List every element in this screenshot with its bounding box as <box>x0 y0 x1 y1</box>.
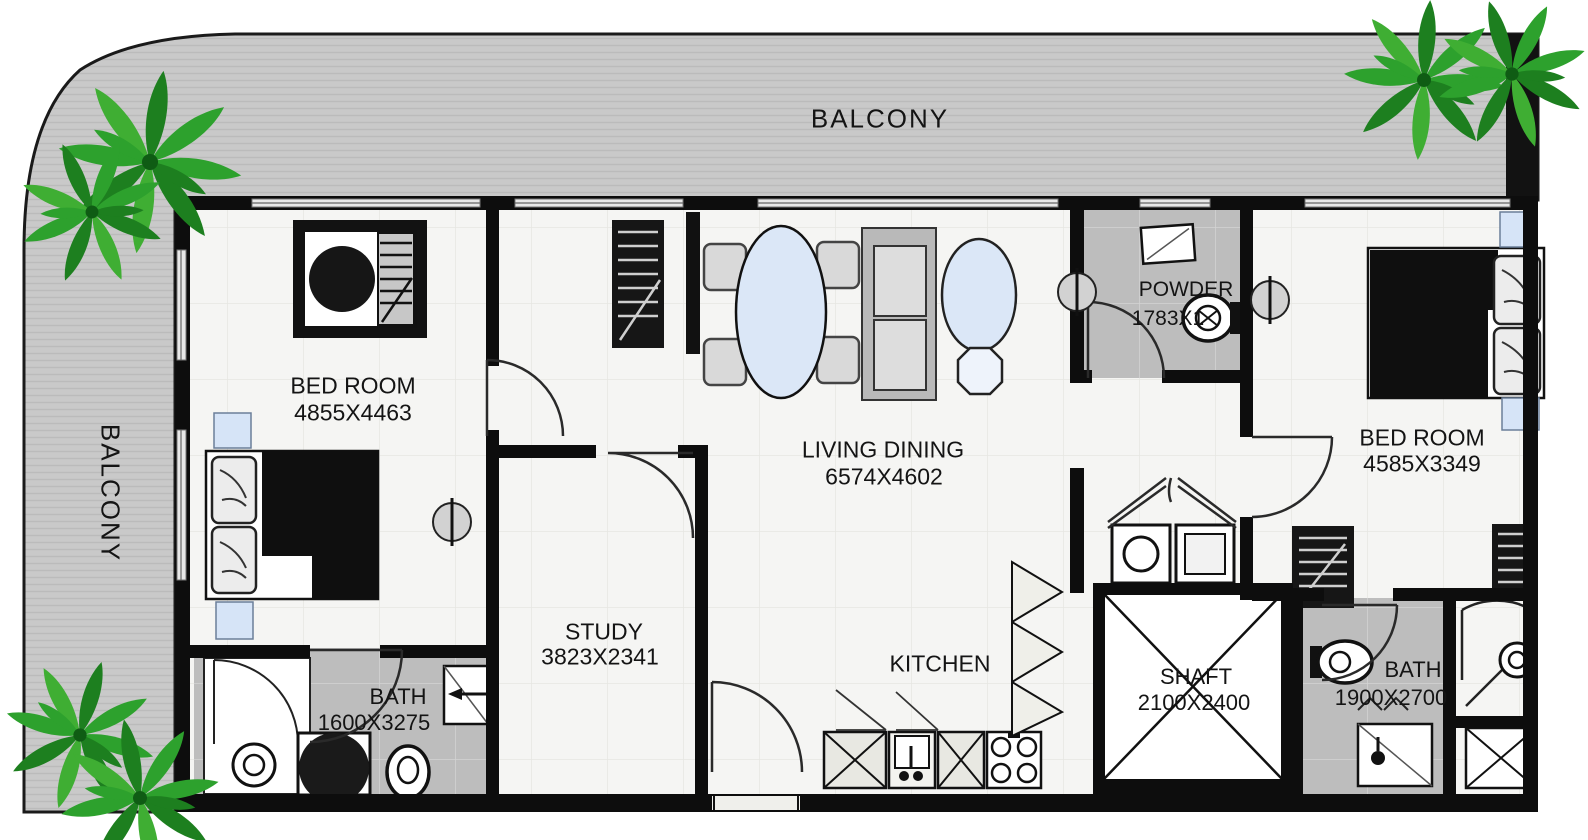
balcony-left-label: BALCONY <box>95 424 126 562</box>
room-label-living-dining: LIVING DINING <box>802 437 964 464</box>
room-dims-bedroom-right: 4585X3349 <box>1363 451 1481 478</box>
room-label-kitchen: KITCHEN <box>890 651 991 678</box>
bed-right-bedroom <box>1368 248 1544 398</box>
room-dims-shaft: 2100X2400 <box>1138 690 1251 716</box>
floor-plan: BALCONY BALCONY BED ROOM 4855X4463 LIVIN… <box>0 0 1588 840</box>
laundry-basket-icon <box>299 733 369 803</box>
room-dims-study: 3823X2341 <box>541 644 659 671</box>
tub-icon <box>1358 724 1432 786</box>
room-dims-bath-left: 1600X3275 <box>318 710 431 736</box>
sofa <box>862 228 936 400</box>
room-label-powder: POWDER <box>1139 278 1234 302</box>
wall-column <box>686 212 700 354</box>
balcony-door <box>712 796 800 810</box>
hall-closet <box>612 220 664 348</box>
room-label-bedroom-left: BED ROOM <box>290 373 415 400</box>
side-table <box>958 348 1002 394</box>
balcony-top-label: BALCONY <box>811 104 949 135</box>
room-dims-bath-right: 1900X2700 <box>1335 685 1448 711</box>
room-dims-living-dining: 6574X4602 <box>825 464 943 491</box>
floor-plan-graphic <box>0 0 1588 840</box>
room-label-bath-right: BATH <box>1384 657 1441 683</box>
room-dims-bedroom-left: 4855X4463 <box>294 400 412 427</box>
room-label-bedroom-right: BED ROOM <box>1359 425 1484 452</box>
oval-rug <box>942 239 1016 351</box>
nightstand <box>216 602 253 639</box>
shower-icon <box>444 666 488 724</box>
washer-icon <box>1112 525 1170 583</box>
room-label-bath-left: BATH <box>369 684 426 710</box>
room-dims-powder: 1783X1 <box>1132 307 1204 331</box>
room-label-shaft: SHAFT <box>1160 664 1232 690</box>
nightstand <box>214 413 251 448</box>
dining-table <box>736 226 826 398</box>
tall-cabinets <box>1012 562 1062 736</box>
powder-sink <box>1141 224 1195 264</box>
bed-left-bedroom <box>206 451 378 599</box>
wardrobe-left-bedroom <box>293 220 427 338</box>
room-label-study: STUDY <box>565 619 643 646</box>
